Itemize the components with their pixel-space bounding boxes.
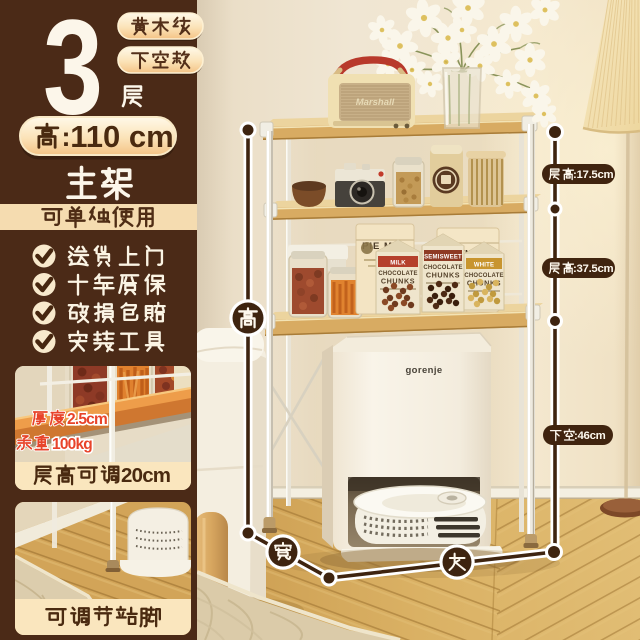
svg-text:gorenje: gorenje [405,365,442,376]
svg-text:WHITE: WHITE [474,263,494,269]
svg-text:100kg: 100kg [52,436,92,453]
svg-text:2.5cm: 2.5cm [67,411,107,428]
svg-text:20cm: 20cm [121,464,170,487]
svg-text:CHUNKS: CHUNKS [426,271,460,280]
svg-text:SEMISWEET: SEMISWEET [424,255,462,261]
svg-text::46cm: :46cm [574,430,606,442]
svg-text:110 cm: 110 cm [70,119,173,154]
svg-text::17.5cm: :17.5cm [573,169,613,181]
svg-text:MILK: MILK [390,261,406,267]
svg-text:Marshall: Marshall [356,97,395,108]
svg-text::37.5cm: :37.5cm [573,263,613,275]
svg-text::: : [62,122,71,152]
